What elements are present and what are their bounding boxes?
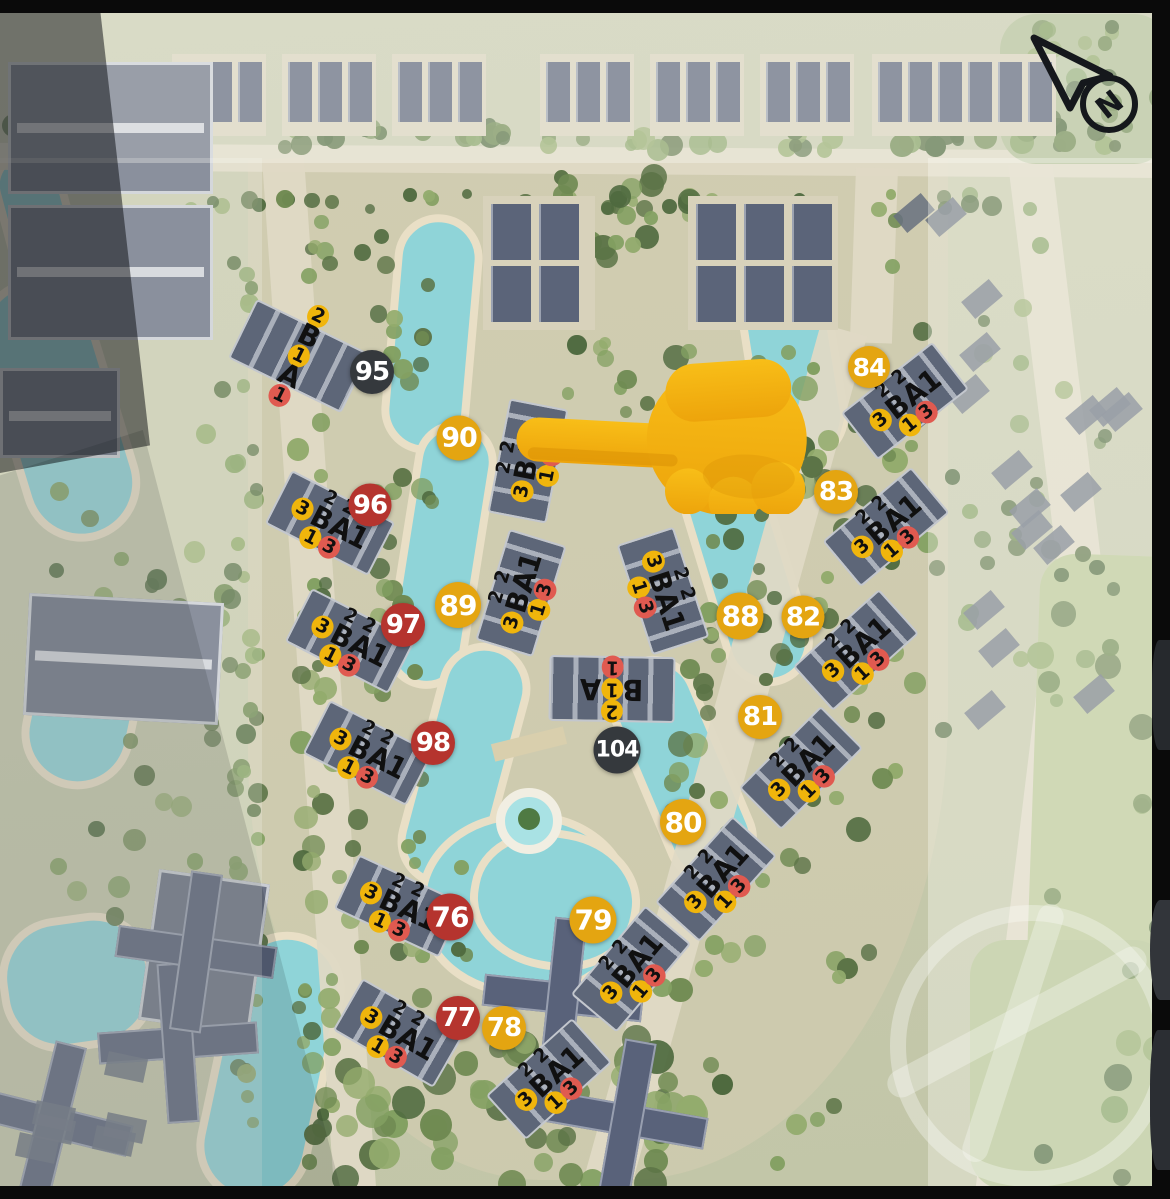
frame-top bbox=[0, 0, 1170, 13]
masterplan-map: 2B1A1223BA113223BA113223BA113223BA113223… bbox=[0, 0, 1170, 1199]
frame-right-shape bbox=[1152, 640, 1170, 750]
frame-layer bbox=[0, 0, 1170, 1199]
frame-right bbox=[1152, 0, 1170, 1199]
frame-right-shape bbox=[1150, 1030, 1170, 1170]
frame-bottom bbox=[0, 1186, 1170, 1199]
frame-right-shape bbox=[1150, 900, 1170, 1000]
